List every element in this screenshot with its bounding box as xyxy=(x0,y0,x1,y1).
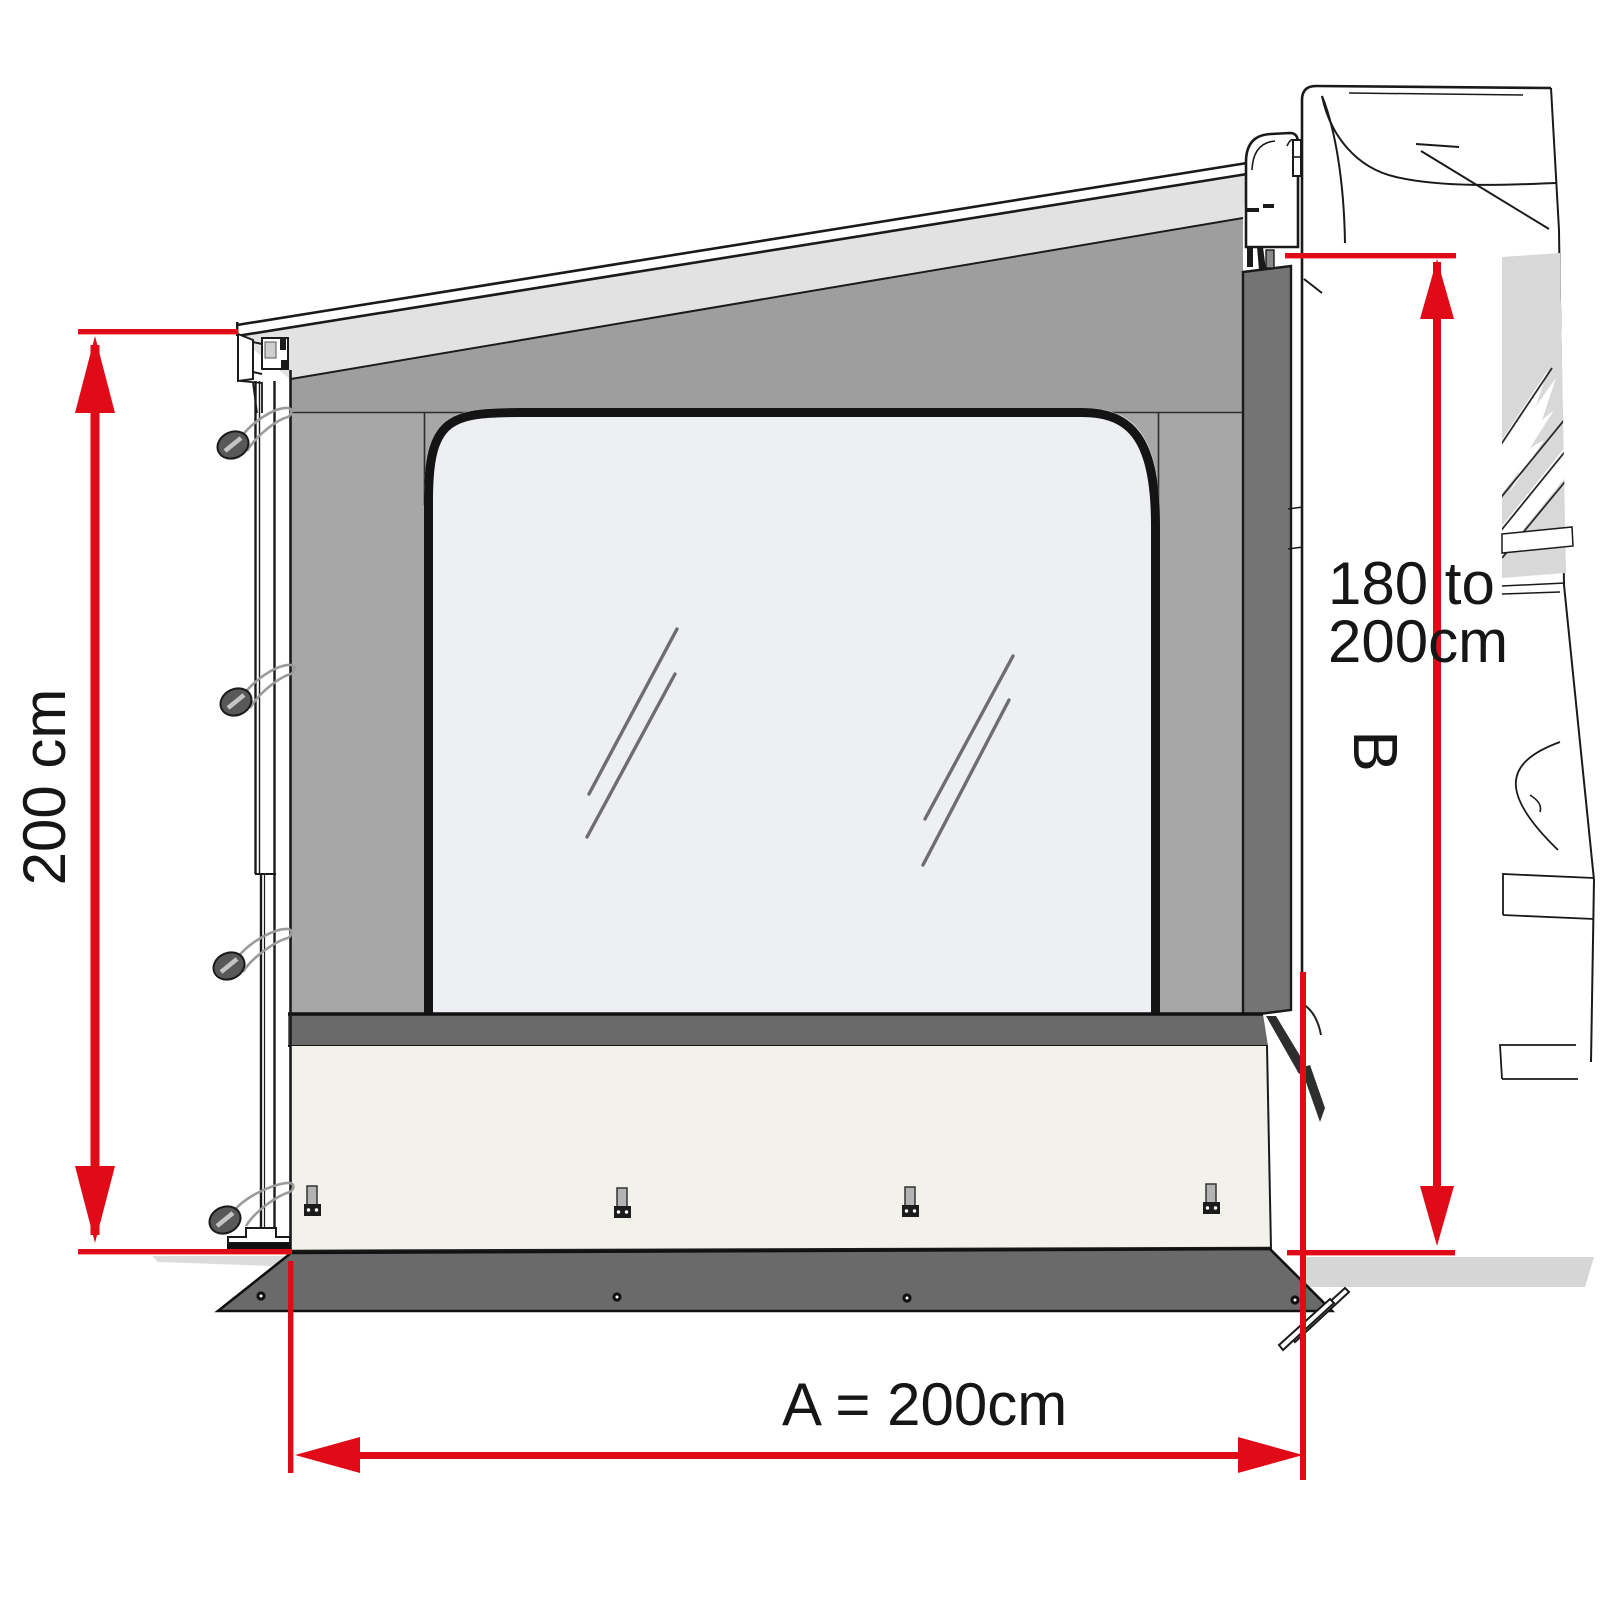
svg-text:B: B xyxy=(1340,730,1409,771)
svg-text:200cm: 200cm xyxy=(1328,608,1508,675)
svg-text:200 cm: 200 cm xyxy=(11,689,78,886)
svg-text:A = 200cm: A = 200cm xyxy=(782,1371,1067,1438)
svg-text:180 to: 180 to xyxy=(1328,550,1495,617)
